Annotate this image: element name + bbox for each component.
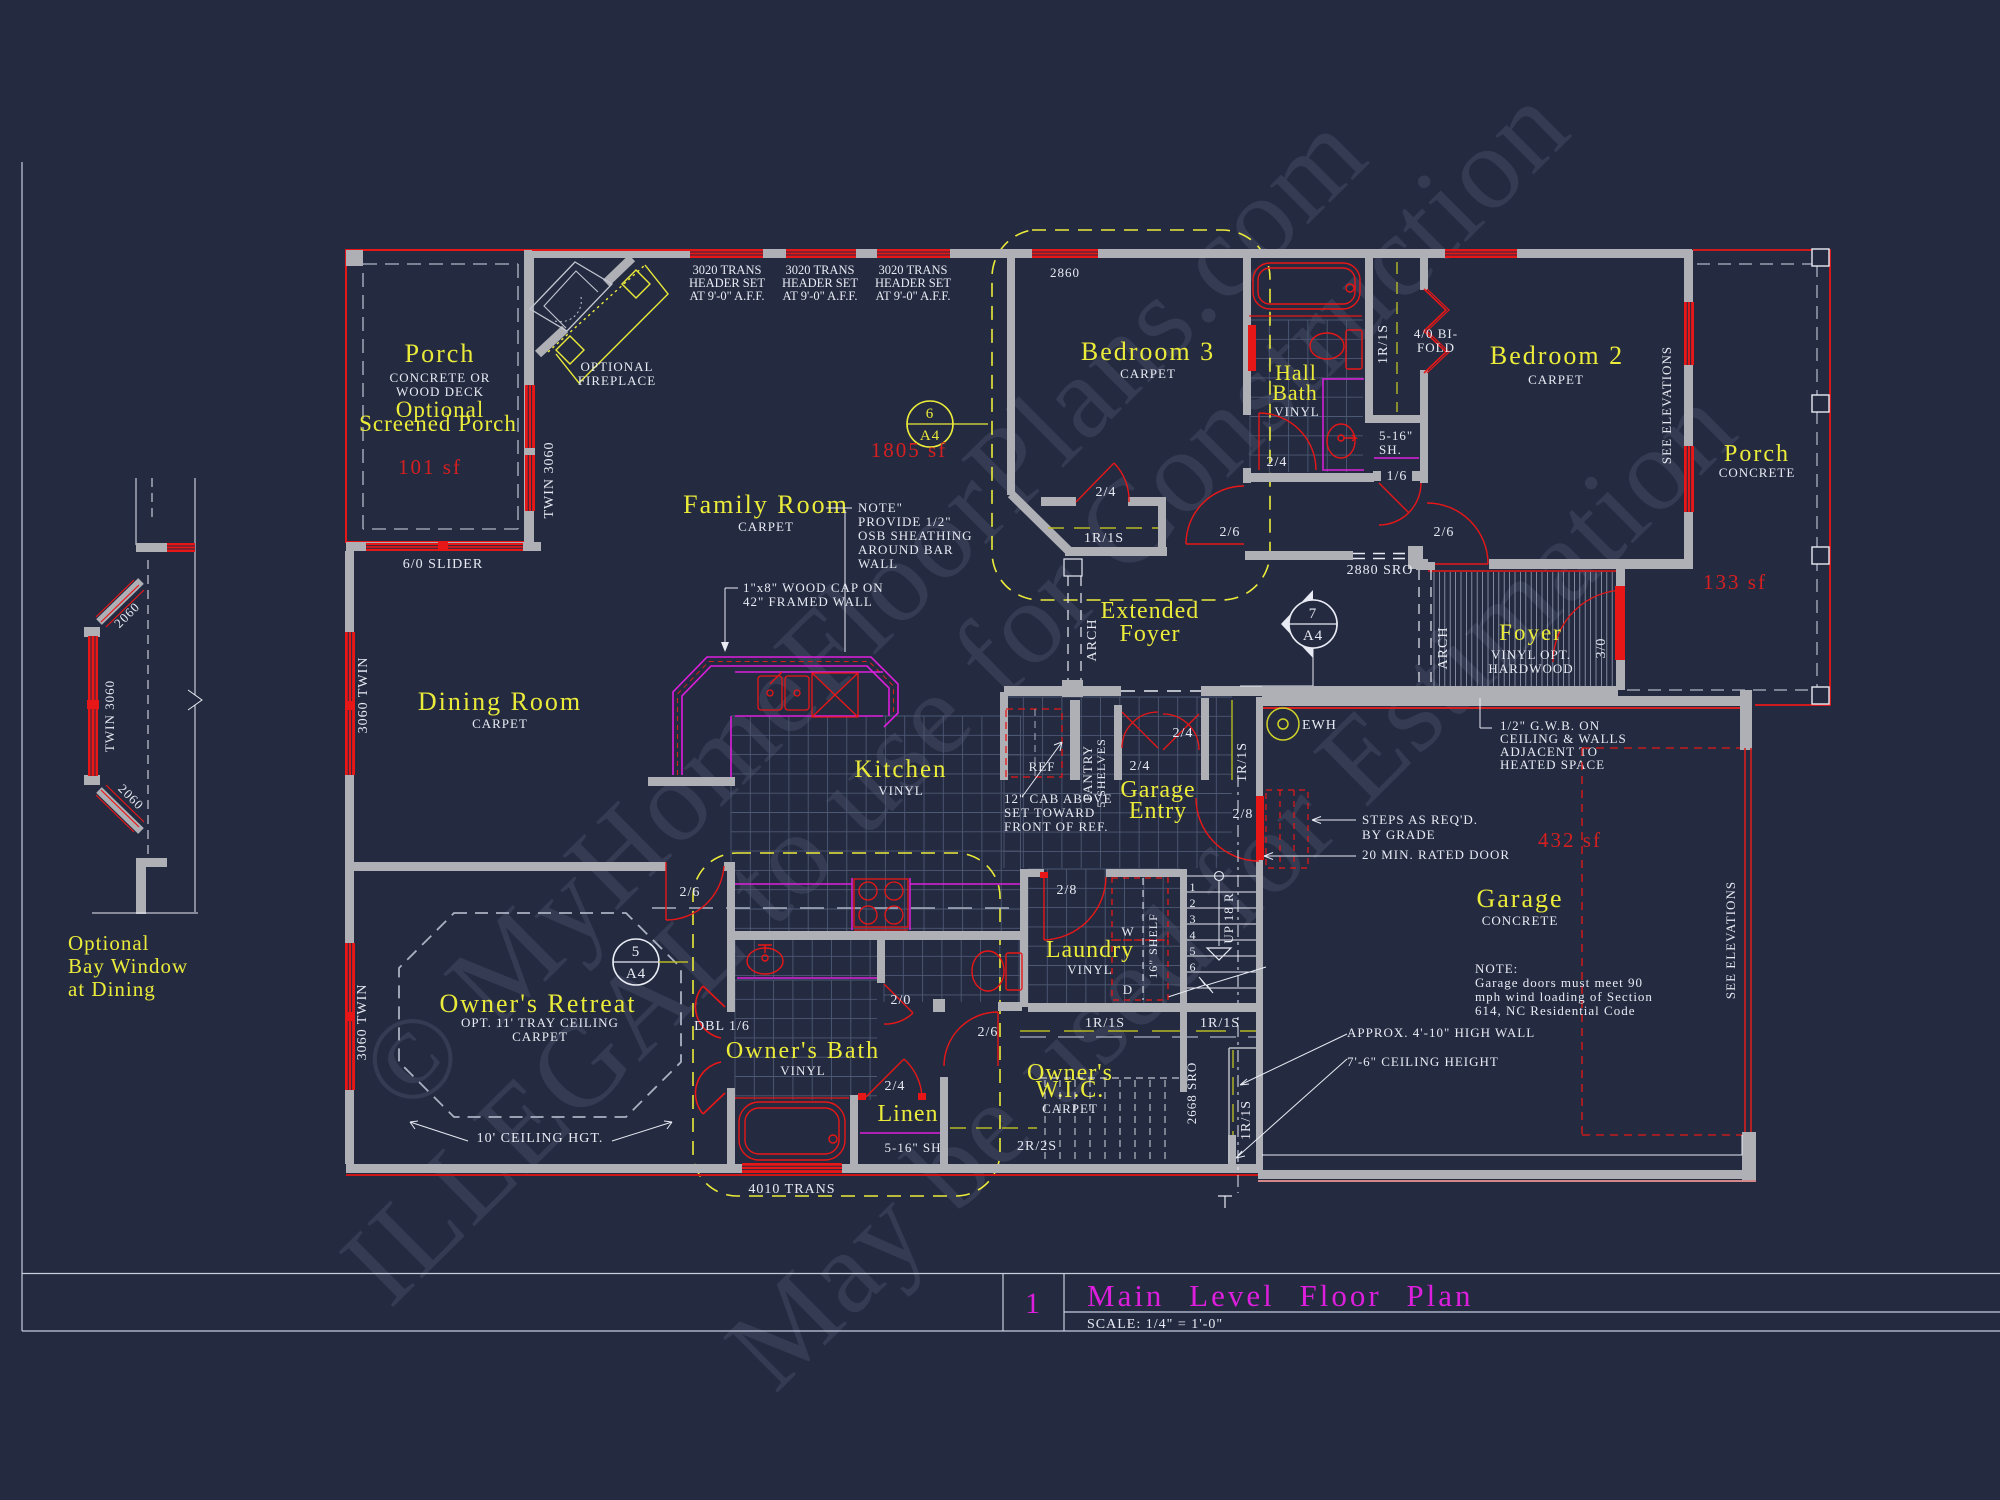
svg-text:WALL: WALL	[858, 556, 898, 571]
svg-text:SET TOWARD: SET TOWARD	[1004, 805, 1095, 820]
svg-text:Kitchen: Kitchen	[854, 756, 947, 783]
svg-text:A4: A4	[1303, 628, 1323, 644]
svg-text:3020 TRANS: 3020 TRANS	[879, 263, 948, 277]
svg-text:AT 9'-0" A.F.F.: AT 9'-0" A.F.F.	[690, 289, 765, 303]
svg-text:CARPET: CARPET	[738, 519, 794, 534]
svg-text:AT 9'-0" A.F.F.: AT 9'-0" A.F.F.	[783, 289, 858, 303]
svg-text:7'-6" CEILING HEIGHT: 7'-6" CEILING HEIGHT	[1347, 1054, 1499, 1069]
svg-text:2/4: 2/4	[1096, 485, 1117, 500]
svg-text:APPROX. 4'-10" HIGH WALL: APPROX. 4'-10" HIGH WALL	[1347, 1025, 1535, 1040]
svg-text:CARPET: CARPET	[1042, 1101, 1098, 1116]
svg-text:Porch: Porch	[405, 339, 476, 368]
svg-text:UP 18 R: UP 18 R	[1221, 892, 1236, 943]
svg-text:D: D	[1123, 982, 1133, 997]
svg-text:1R/1S: 1R/1S	[1085, 1016, 1125, 1031]
svg-text:NOTE:: NOTE:	[1475, 961, 1518, 976]
svg-text:1R/1S: 1R/1S	[1235, 742, 1250, 782]
svg-text:CONCRETE: CONCRETE	[1719, 465, 1796, 480]
svg-text:PROVIDE 1/2": PROVIDE 1/2"	[858, 514, 952, 529]
svg-text:2880 SRO: 2880 SRO	[1347, 563, 1414, 578]
svg-text:3060 TWIN: 3060 TWIN	[356, 657, 371, 734]
svg-text:Foyer: Foyer	[1499, 620, 1563, 645]
svg-text:Laundry: Laundry	[1046, 937, 1134, 963]
svg-text:FOLD: FOLD	[1417, 340, 1455, 355]
svg-text:OPTIONAL: OPTIONAL	[581, 359, 654, 374]
svg-text:6: 6	[926, 406, 935, 422]
svg-text:Family Room: Family Room	[683, 490, 849, 519]
svg-text:2: 2	[1190, 896, 1197, 910]
svg-text:3020 TRANS: 3020 TRANS	[693, 263, 762, 277]
svg-text:HEADER SET: HEADER SET	[689, 276, 765, 290]
svg-text:1R/1S: 1R/1S	[1376, 324, 1391, 364]
svg-text:AROUND BAR: AROUND BAR	[858, 542, 954, 557]
svg-text:3/0: 3/0	[1594, 638, 1609, 659]
svg-text:Linen: Linen	[878, 1101, 939, 1127]
svg-text:5-16" SH: 5-16" SH	[884, 1140, 941, 1155]
svg-text:2/6: 2/6	[680, 885, 701, 900]
svg-text:2/4: 2/4	[1173, 726, 1194, 741]
svg-text:101 sf: 101 sf	[398, 455, 462, 479]
svg-text:2/6: 2/6	[1220, 525, 1241, 540]
svg-text:Entry: Entry	[1129, 798, 1187, 824]
svg-text:7: 7	[1309, 606, 1318, 622]
svg-text:STEPS AS REQ'D.: STEPS AS REQ'D.	[1362, 812, 1478, 827]
svg-text:VINYL OPT.: VINYL OPT.	[1491, 647, 1571, 662]
svg-text:133 sf: 133 sf	[1703, 570, 1767, 594]
svg-text:EWH: EWH	[1302, 718, 1337, 733]
svg-text:1R/1S: 1R/1S	[1200, 1016, 1240, 1031]
svg-text:CARPET: CARPET	[1528, 372, 1584, 387]
svg-text:VINYL: VINYL	[1274, 404, 1319, 419]
svg-text:2/4: 2/4	[1267, 455, 1288, 470]
svg-text:Dining Room: Dining Room	[418, 687, 582, 716]
svg-text:HARDWOOD: HARDWOOD	[1488, 661, 1573, 676]
svg-text:1: 1	[1190, 880, 1197, 894]
svg-text:A4: A4	[626, 966, 646, 982]
svg-text:Garage doors must meet 90: Garage doors must meet 90	[1475, 975, 1643, 990]
svg-text:Bedroom 2: Bedroom 2	[1490, 341, 1624, 370]
svg-text:HEADER SET: HEADER SET	[875, 276, 951, 290]
svg-text:Optional: Optional	[68, 931, 150, 955]
svg-text:2/0: 2/0	[891, 993, 912, 1008]
svg-text:1/6: 1/6	[1387, 469, 1408, 484]
svg-text:CARPET: CARPET	[472, 716, 528, 731]
svg-text:6: 6	[1190, 960, 1197, 974]
svg-text:1805 sf: 1805 sf	[871, 438, 947, 462]
svg-text:Owner's Retreat: Owner's Retreat	[439, 989, 636, 1018]
svg-text:HEATED SPACE: HEATED SPACE	[1500, 757, 1605, 772]
svg-text:2/8: 2/8	[1233, 807, 1254, 822]
svg-text:3: 3	[1190, 912, 1197, 926]
svg-text:5: 5	[632, 944, 641, 960]
svg-text:NOTE": NOTE"	[858, 500, 903, 515]
svg-text:CONCRETE: CONCRETE	[1482, 913, 1559, 928]
svg-text:Main Level Floor Plan: Main Level Floor Plan	[1087, 1278, 1474, 1313]
svg-text:1"x8" WOOD CAP ON: 1"x8" WOOD CAP ON	[743, 580, 884, 595]
svg-text:4010 TRANS: 4010 TRANS	[748, 1182, 835, 1197]
svg-text:Bedroom 3: Bedroom 3	[1081, 337, 1215, 366]
svg-text:5-16": 5-16"	[1379, 428, 1413, 443]
svg-text:DBL 1/6: DBL 1/6	[694, 1019, 750, 1034]
svg-text:VINYL: VINYL	[780, 1063, 825, 1078]
svg-text:614, NC Residential Code: 614, NC Residential Code	[1475, 1003, 1636, 1018]
svg-text:20 MIN. RATED DOOR: 20 MIN. RATED DOOR	[1362, 847, 1510, 862]
svg-text:OSB SHEATHING: OSB SHEATHING	[858, 528, 972, 543]
svg-text:SCALE: 1/4" = 1'-0": SCALE: 1/4" = 1'-0"	[1087, 1317, 1223, 1332]
svg-text:VINYL: VINYL	[1067, 962, 1112, 977]
svg-text:Bath: Bath	[1272, 380, 1318, 405]
svg-text:CONCRETE OR: CONCRETE OR	[390, 370, 491, 385]
svg-text:at Dining: at Dining	[68, 977, 156, 1001]
svg-text:Bay Window: Bay Window	[68, 954, 188, 978]
svg-text:BY GRADE: BY GRADE	[1362, 827, 1436, 842]
svg-text:4/0 BI-: 4/0 BI-	[1414, 326, 1458, 341]
svg-text:Screened Porch: Screened Porch	[359, 411, 517, 436]
svg-text:432 sf: 432 sf	[1538, 828, 1602, 852]
svg-text:HEADER SET: HEADER SET	[782, 276, 858, 290]
svg-text:5: 5	[1190, 944, 1197, 958]
svg-text:16" SHELF: 16" SHELF	[1146, 913, 1160, 979]
svg-text:Garage: Garage	[1476, 884, 1563, 913]
svg-text:2/8: 2/8	[1057, 883, 1078, 898]
svg-text:Owner's Bath: Owner's Bath	[726, 1038, 880, 1064]
svg-text:1R/1S: 1R/1S	[1084, 531, 1124, 546]
svg-text:SH.: SH.	[1379, 442, 1402, 457]
svg-text:SEE ELEVATIONS: SEE ELEVATIONS	[1723, 881, 1738, 999]
svg-text:VINYL: VINYL	[878, 783, 923, 798]
svg-text:4: 4	[1190, 928, 1197, 942]
svg-text:REF: REF	[1029, 759, 1056, 774]
svg-text:6/0 SLIDER: 6/0 SLIDER	[403, 557, 483, 572]
svg-text:mph wind loading of Section: mph wind loading of Section	[1475, 989, 1653, 1004]
svg-text:W: W	[1121, 924, 1134, 939]
svg-text:42" FRAMED WALL: 42" FRAMED WALL	[743, 594, 873, 609]
svg-text:2/4: 2/4	[885, 1079, 906, 1094]
svg-text:TWIN 3060: TWIN 3060	[102, 680, 117, 752]
svg-text:ARCH: ARCH	[1436, 627, 1451, 670]
svg-text:12" CAB ABOVE: 12" CAB ABOVE	[1004, 791, 1113, 806]
svg-text:W.I.C.: W.I.C.	[1036, 1077, 1104, 1103]
svg-text:2/6: 2/6	[1434, 525, 1455, 540]
svg-text:SEE ELEVATIONS: SEE ELEVATIONS	[1659, 346, 1674, 464]
svg-text:CARPET: CARPET	[512, 1029, 568, 1044]
svg-text:10' CEILING HGT.: 10' CEILING HGT.	[477, 1131, 604, 1146]
svg-text:ARCH: ARCH	[1085, 619, 1100, 662]
svg-text:2860: 2860	[1050, 265, 1080, 280]
svg-text:1: 1	[1025, 1287, 1041, 1320]
svg-text:FRONT OF REF.: FRONT OF REF.	[1004, 819, 1109, 834]
svg-text:OPT. 11' TRAY CEILING: OPT. 11' TRAY CEILING	[461, 1015, 619, 1030]
svg-text:3060 TWIN: 3060 TWIN	[355, 984, 370, 1061]
svg-text:TWIN 3060: TWIN 3060	[542, 441, 557, 518]
svg-text:FIREPLACE: FIREPLACE	[578, 373, 656, 388]
svg-text:2/6: 2/6	[978, 1025, 999, 1040]
svg-text:Foyer: Foyer	[1120, 621, 1181, 647]
svg-text:Porch: Porch	[1724, 441, 1790, 467]
svg-text:2R/2S: 2R/2S	[1017, 1139, 1057, 1154]
svg-text:CARPET: CARPET	[1120, 366, 1176, 381]
svg-text:2/4: 2/4	[1130, 759, 1151, 774]
svg-text:1R/1S: 1R/1S	[1239, 1100, 1254, 1140]
svg-text:2668 SRO: 2668 SRO	[1184, 1062, 1199, 1125]
svg-text:AT 9'-0" A.F.F.: AT 9'-0" A.F.F.	[876, 289, 951, 303]
svg-text:3020 TRANS: 3020 TRANS	[786, 263, 855, 277]
